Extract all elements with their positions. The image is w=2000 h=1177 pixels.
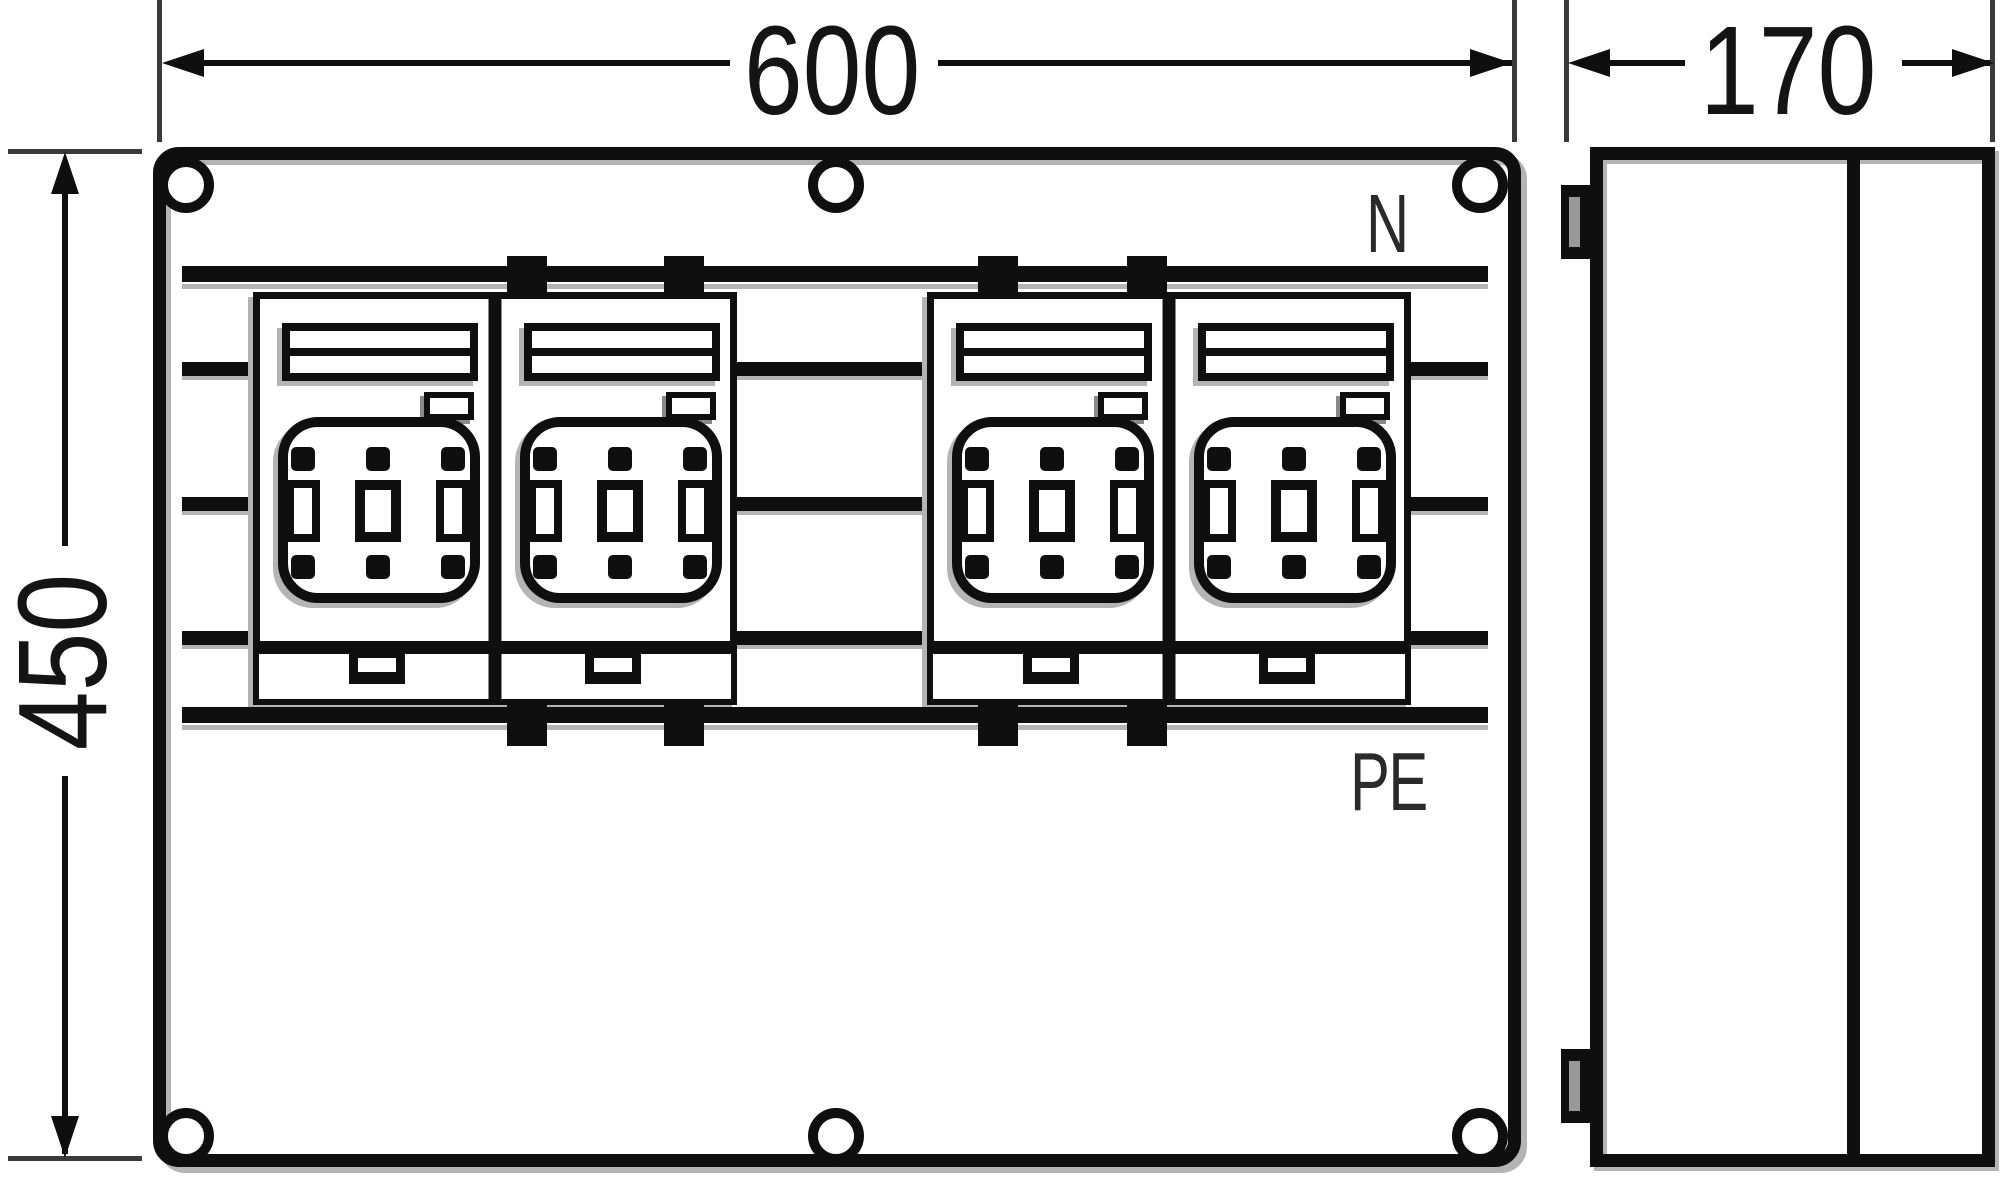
contact-screw (965, 447, 989, 471)
label-plate-divider (1205, 348, 1387, 356)
contact-screw (1115, 447, 1139, 471)
hinge-pin (1569, 1061, 1580, 1111)
contact-screw (608, 555, 632, 579)
label-plate (1198, 323, 1394, 381)
rail-clip-slot (358, 658, 396, 672)
pe-terminal-clamp (664, 700, 704, 746)
fuse-switch-unit-1 (260, 299, 488, 641)
fuse-window (1202, 480, 1236, 542)
fuse-window (597, 480, 643, 542)
enclosure-side-view (1590, 147, 1995, 1167)
arrowhead-left (1568, 49, 1610, 77)
rail-clip (1023, 646, 1079, 684)
label-plate (524, 323, 720, 381)
width-dimension-line (172, 60, 730, 66)
contact-screw (1282, 447, 1306, 471)
enclosure-technical-drawing: N PE 600 170 450 (0, 0, 2000, 1177)
width-dimension-line (938, 60, 1512, 66)
hinge-bottom (1561, 1049, 1590, 1123)
fuse-switch-unit-4 (1176, 299, 1404, 641)
mounting-rail-left (253, 648, 737, 705)
height-dimension-line (62, 174, 68, 546)
rail-clip (585, 646, 641, 684)
label-plate (956, 323, 1152, 381)
rail-clip-slot (1268, 658, 1306, 672)
rail-clip (1259, 646, 1315, 684)
depth-dimension-label: 170 (1666, 8, 1910, 134)
contact-screw (608, 447, 632, 471)
contact-screw (1040, 555, 1064, 579)
contact-screw (1207, 555, 1231, 579)
height-dimension-line (62, 776, 68, 1154)
width-extension-line-right (1512, 0, 1517, 142)
fuse-window (678, 480, 712, 542)
mounting-rail-right (927, 648, 1411, 705)
fuse-window (1352, 480, 1386, 542)
rail-clip (349, 646, 405, 684)
fuse-size-indicator (666, 392, 716, 420)
arrowhead-right (1952, 49, 1994, 77)
label-plate-divider (289, 348, 471, 356)
busbar-n (182, 266, 1488, 282)
pe-terminal-clamp (507, 700, 547, 746)
width-dimension-label: 600 (710, 8, 954, 134)
contact-screw (533, 447, 557, 471)
n-terminal-clamp (507, 256, 547, 294)
contact-screw (1207, 447, 1231, 471)
fuse-size-indicator (424, 392, 474, 420)
hinge-top (1561, 185, 1590, 259)
contact-screw (441, 555, 465, 579)
contact-screw (1357, 555, 1381, 579)
label-plate-divider (963, 348, 1145, 356)
contact-screw (683, 555, 707, 579)
fuse-window (355, 480, 401, 542)
contact-screw (441, 447, 465, 471)
contact-screw (965, 555, 989, 579)
fuse-switch-group-left (253, 292, 737, 648)
fuse-window (960, 480, 994, 542)
mounting-hole-top-middle (808, 157, 864, 213)
contact-screw (366, 555, 390, 579)
fuse-size-indicator (1340, 392, 1390, 420)
fuse-window (1110, 480, 1144, 542)
rail-clip-slot (594, 658, 632, 672)
arrowhead-left (162, 49, 204, 77)
contact-screw (683, 447, 707, 471)
arrowhead-right (1470, 49, 1512, 77)
busbar-pe-shadow (182, 725, 1488, 730)
fuse-switch-group-right (927, 292, 1411, 648)
contact-screw (291, 555, 315, 579)
mounting-hole-bottom-right (1452, 1108, 1508, 1164)
n-terminal-clamp (1127, 256, 1167, 294)
pe-terminal-clamp (978, 700, 1018, 746)
contact-screw (291, 447, 315, 471)
mounting-hole-bottom-middle (808, 1108, 864, 1164)
contact-screw (533, 555, 557, 579)
fuse-size-indicator (1098, 392, 1148, 420)
mounting-hole-bottom-left (158, 1108, 214, 1164)
mounting-hole-top-left (158, 157, 214, 213)
busbar-pe-label: PE (1350, 740, 1457, 823)
busbar-pe (182, 707, 1488, 723)
fuse-window (286, 480, 320, 542)
rail-divider (489, 648, 502, 705)
contact-screw (366, 447, 390, 471)
rail-clip-slot (1032, 658, 1070, 672)
unit-divider (1163, 292, 1176, 662)
busbar-n-shadow (182, 284, 1488, 289)
fuse-window (1029, 480, 1075, 542)
fuse-switch-unit-3 (934, 299, 1162, 641)
contact-screw (1357, 447, 1381, 471)
n-terminal-clamp (978, 256, 1018, 294)
fuse-window (528, 480, 562, 542)
arrowhead-down (51, 1116, 79, 1158)
fuse-switch-unit-2 (502, 299, 730, 641)
contact-screw (1040, 447, 1064, 471)
busbar-n-label: N (1366, 182, 1424, 265)
contact-screw (1115, 555, 1139, 579)
fuse-window (436, 480, 470, 542)
label-plate (282, 323, 478, 381)
rail-divider (1163, 648, 1176, 705)
unit-divider (489, 292, 502, 662)
n-terminal-clamp (664, 256, 704, 294)
mounting-hole-top-right (1452, 157, 1508, 213)
side-view-lid-divider (1847, 147, 1860, 1167)
label-plate-divider (531, 348, 713, 356)
hinge-pin (1569, 197, 1580, 247)
pe-terminal-clamp (1127, 700, 1167, 746)
fuse-window (1271, 480, 1317, 542)
contact-screw (1282, 555, 1306, 579)
arrowhead-up (51, 152, 79, 194)
